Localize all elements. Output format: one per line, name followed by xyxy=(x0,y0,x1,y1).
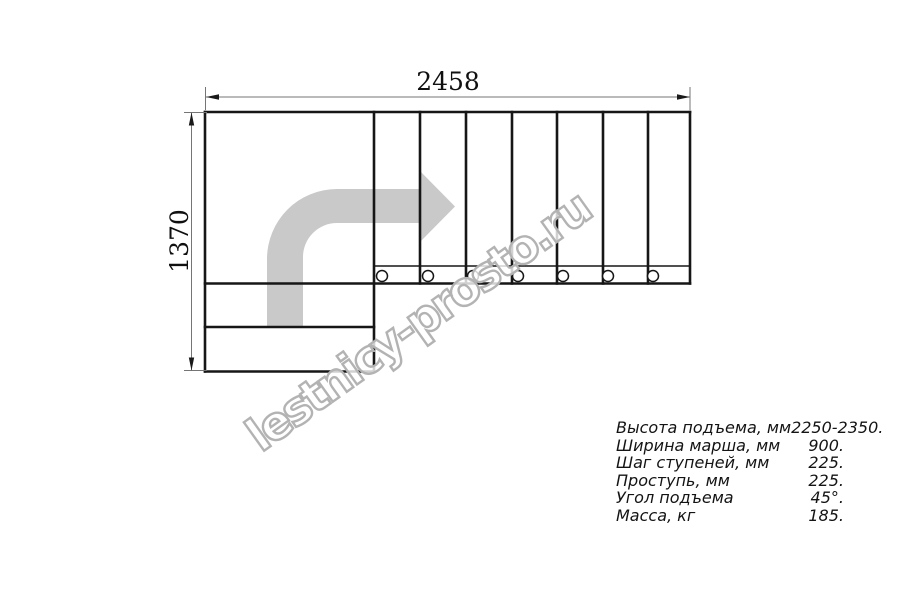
spec-row: Проступь, мм 225. xyxy=(616,472,844,490)
dimension-arrowhead-right-icon xyxy=(677,94,690,99)
spec-table: Высота подъема, мм 2250-2350. Ширина мар… xyxy=(616,419,844,525)
spec-row: Масса, кг 185. xyxy=(616,507,844,525)
dimension-top: 2458 xyxy=(206,67,691,110)
spec-label: Шаг ступеней, мм xyxy=(616,454,769,472)
spec-label: Ширина марша, мм xyxy=(616,437,780,455)
spec-row: Высота подъема, мм 2250-2350. xyxy=(616,419,844,437)
spec-row: Шаг ступеней, мм 225. xyxy=(616,454,844,472)
spec-label: Проступь, мм xyxy=(616,472,730,490)
dimension-left: 1370 xyxy=(165,113,207,371)
spec-value: 45°. xyxy=(811,489,844,507)
spec-value: 225. xyxy=(808,454,844,472)
spec-row: Ширина марша, мм 900. xyxy=(616,437,844,455)
dimension-arrowhead-left-icon xyxy=(206,94,219,99)
dimension-height-label: 1370 xyxy=(165,209,194,273)
spec-label: Масса, кг xyxy=(616,507,695,525)
dimension-width-label: 2458 xyxy=(416,67,480,96)
spec-value: 225. xyxy=(808,472,844,490)
dimension-arrowhead-up-icon xyxy=(189,113,194,126)
spec-row: Угол подъема 45°. xyxy=(616,489,844,507)
spec-label: Высота подъема, мм xyxy=(616,419,791,437)
spec-label: Угол подъема xyxy=(616,489,734,507)
spec-value: 185. xyxy=(808,507,844,525)
spec-value: 2250-2350. xyxy=(791,419,883,437)
dimension-arrowhead-down-icon xyxy=(189,358,194,371)
spec-value: 900. xyxy=(808,437,844,455)
